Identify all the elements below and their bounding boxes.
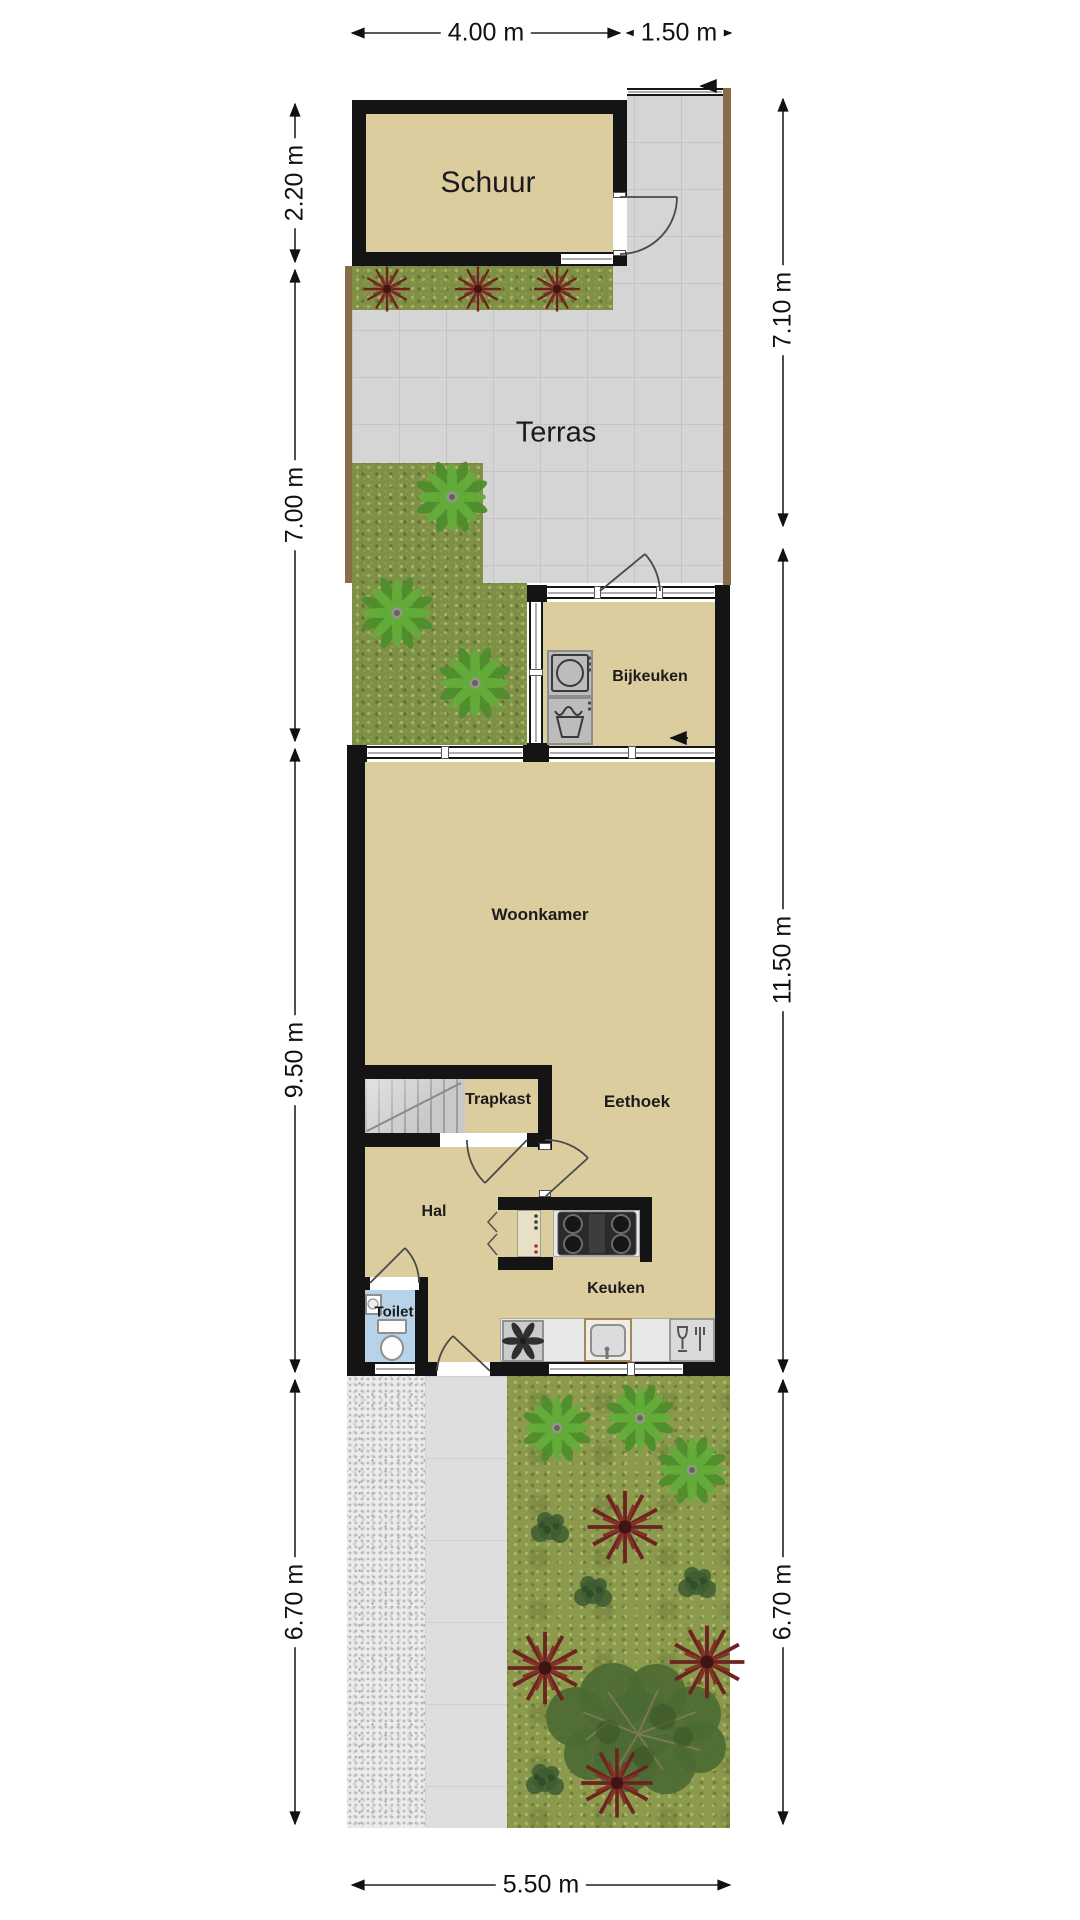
sink-basin [590, 1324, 626, 1357]
wall [347, 1065, 552, 1079]
label-hal: Hal [422, 1203, 447, 1221]
dishwasher [669, 1318, 715, 1362]
wall [415, 1362, 437, 1376]
window-mullion [529, 669, 543, 676]
wall [613, 100, 627, 197]
dim-left-9-5m: 9.50 m [281, 1015, 310, 1105]
door-jamb [613, 250, 626, 256]
window [549, 1362, 683, 1376]
door-jamb [613, 192, 626, 198]
door-opening [370, 1277, 419, 1290]
door-jamb [539, 1190, 551, 1197]
wall [347, 1133, 440, 1147]
grass-strip [352, 266, 613, 310]
door-jamb [656, 586, 663, 599]
dim-right-7-1m: 7.10 m [769, 265, 798, 355]
dim-right-6-7m: 6.70 m [769, 1557, 798, 1647]
staircase-shade [365, 1079, 465, 1133]
wall [683, 1362, 730, 1376]
window-mullion [628, 746, 636, 759]
wall [640, 1197, 652, 1262]
door-opening [440, 1133, 527, 1147]
wall [347, 1277, 370, 1290]
fence-left [345, 266, 352, 583]
wall [715, 585, 730, 1376]
door-jamb [594, 586, 601, 599]
window [375, 1362, 415, 1376]
grass-area [352, 583, 527, 745]
back-garden [507, 1376, 730, 1828]
wall [347, 745, 367, 762]
toilet-bowl [380, 1335, 404, 1361]
window-mullion [627, 1362, 635, 1376]
wall [498, 1257, 553, 1270]
dim-bottom-5-5m: 5.50 m [496, 1871, 586, 1900]
label-schuur: Schuur [440, 166, 535, 200]
washing-machine [547, 650, 593, 697]
label-keuken: Keuken [587, 1280, 645, 1298]
front-door-opening [437, 1362, 490, 1376]
door-opening [613, 197, 626, 252]
dim-left-7m: 7.00 m [281, 460, 310, 550]
kitchen-counter-top [553, 1210, 640, 1257]
window-and-backdoor [547, 586, 715, 599]
wall [498, 1197, 652, 1210]
laundry-sink [547, 697, 593, 745]
wall [523, 745, 549, 762]
window [561, 252, 613, 266]
appliance-fan [502, 1320, 544, 1362]
floor-plan: Schuur Terras Bijkeuken Woonkamer Trapka… [0, 0, 1080, 1920]
dim-left-6-7m: 6.70 m [281, 1557, 310, 1647]
door-jamb [539, 1143, 551, 1150]
terrace-surface [613, 266, 723, 310]
window-mullion [441, 746, 449, 759]
tile-path [425, 1376, 507, 1828]
label-terras: Terras [516, 417, 597, 450]
wall [490, 1362, 549, 1376]
room-woonkamer [365, 762, 715, 1362]
gate [627, 88, 723, 96]
grass-area [352, 463, 483, 583]
wall [527, 585, 547, 602]
cupboard-unit [517, 1210, 541, 1257]
wall [352, 114, 366, 266]
dim-right-11-5m: 11.50 m [769, 909, 798, 1011]
terrace-surface [483, 463, 723, 583]
dim-top-1-5m: 1.50 m [634, 19, 724, 48]
wall [347, 1362, 375, 1376]
label-toilet: Toilet [375, 1304, 414, 1321]
dim-top-4m: 4.00 m [441, 19, 531, 48]
dim-left-2-2m: 2.20 m [281, 138, 310, 228]
label-bijkeuken: Bijkeuken [612, 668, 688, 686]
gravel-strip [347, 1376, 425, 1828]
terrace-surface [627, 96, 723, 266]
wall [352, 100, 627, 114]
label-eethoek: Eethoek [604, 1092, 670, 1112]
label-woonkamer: Woonkamer [492, 905, 589, 925]
label-trapkast: Trapkast [465, 1091, 531, 1109]
toilet-tank [377, 1319, 407, 1334]
wall [352, 252, 561, 266]
fence-right [723, 88, 731, 585]
